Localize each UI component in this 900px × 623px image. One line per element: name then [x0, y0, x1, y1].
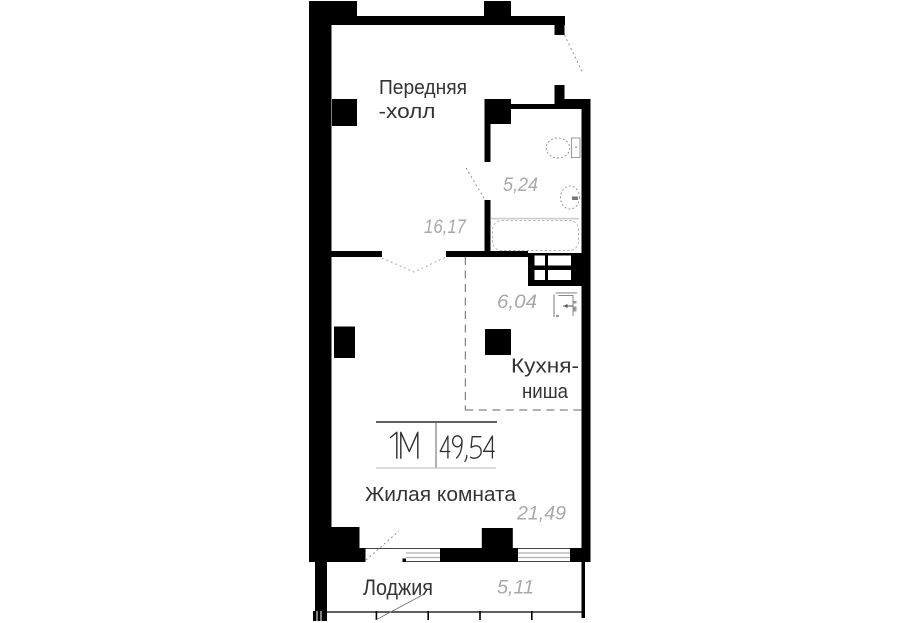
- svg-text:21,49: 21,49: [516, 504, 566, 525]
- svg-text:Кухня-: Кухня-: [511, 356, 579, 378]
- svg-text:Лоджия: Лоджия: [363, 575, 433, 600]
- svg-text:5,11: 5,11: [497, 578, 534, 599]
- svg-text:Жилая комната: Жилая комната: [365, 484, 517, 506]
- svg-text:Передняя: Передняя: [379, 77, 467, 99]
- svg-text:-холл: -холл: [379, 101, 436, 123]
- svg-text:16,17: 16,17: [424, 217, 467, 238]
- svg-text:6,04: 6,04: [497, 292, 537, 313]
- svg-text:5,24: 5,24: [503, 175, 538, 196]
- svg-text:ниша: ниша: [522, 381, 569, 403]
